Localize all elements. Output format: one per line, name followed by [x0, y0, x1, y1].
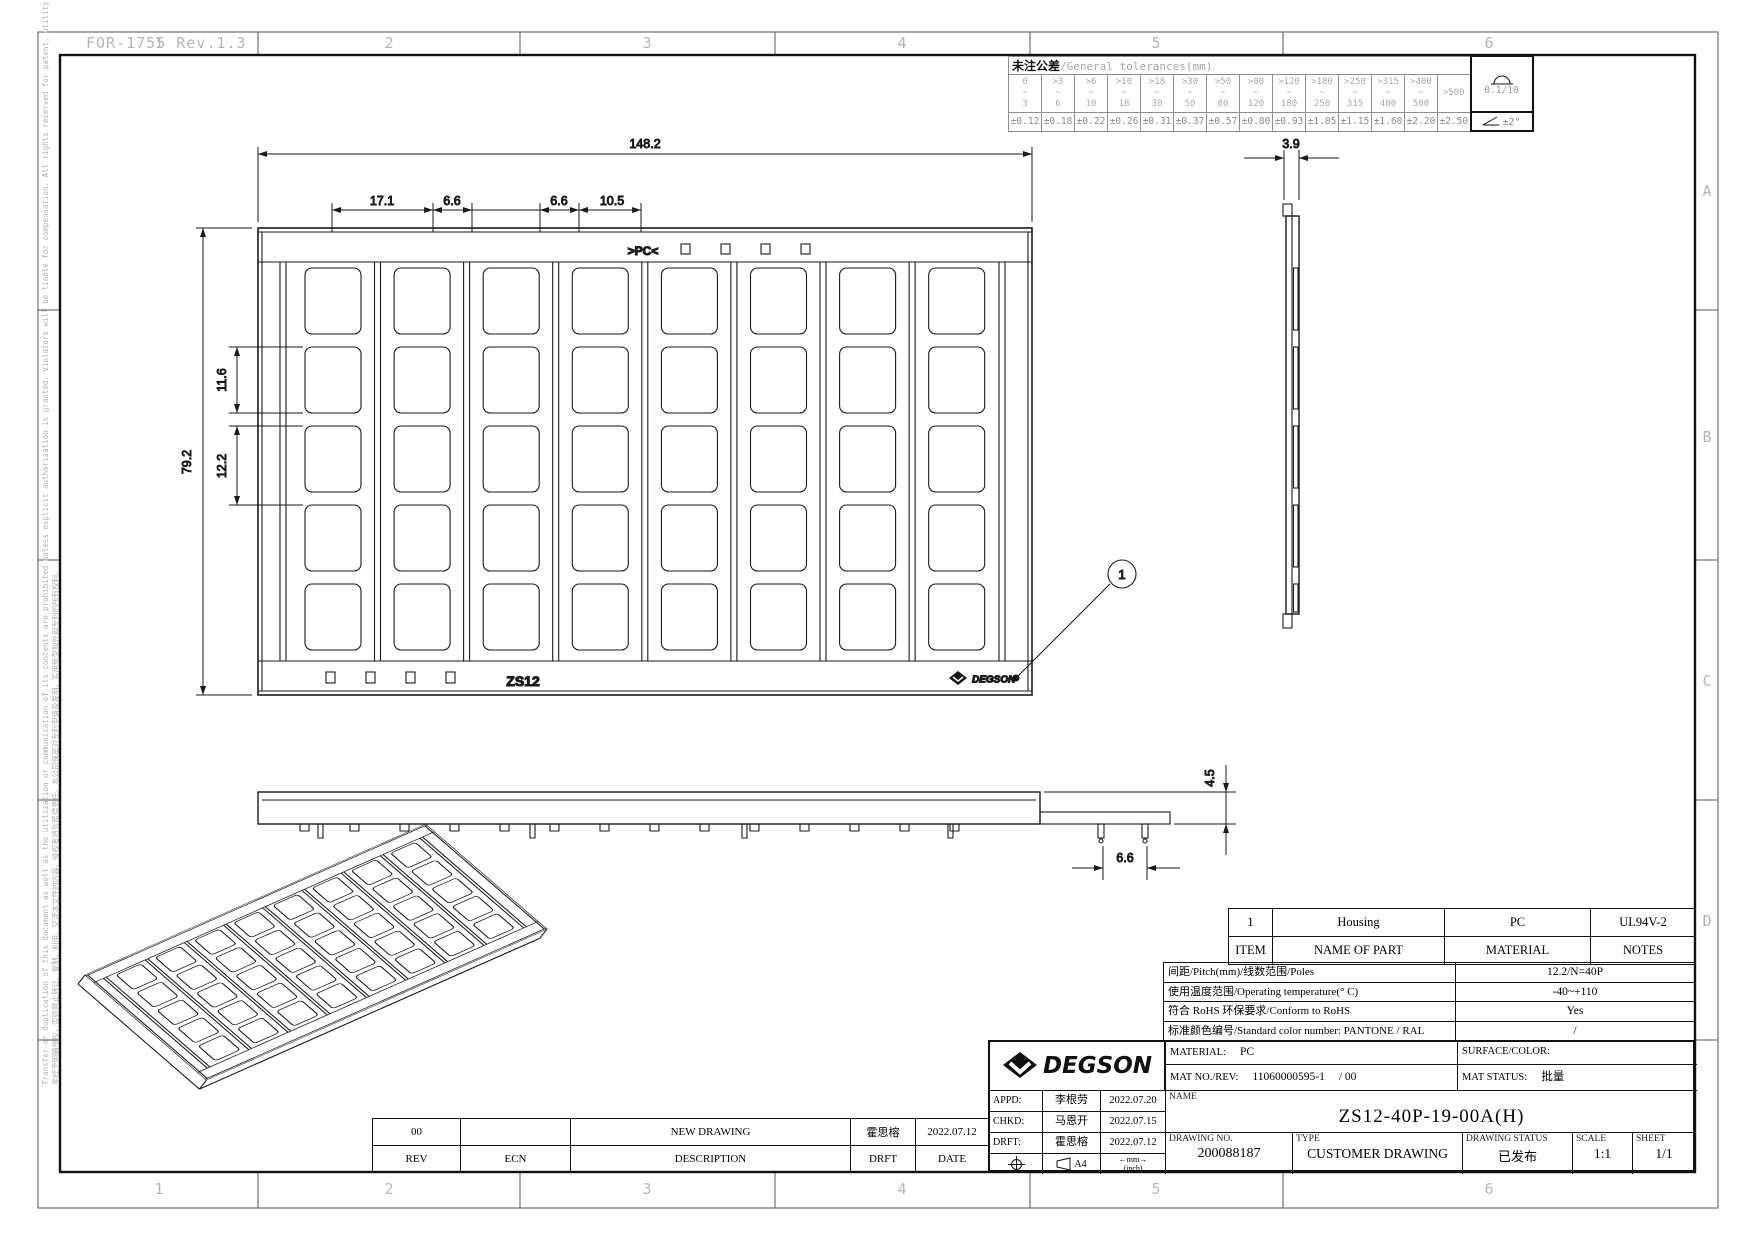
dim-seg-c: 6.6	[550, 194, 567, 208]
zone-col-6-bottom: 6	[1479, 1180, 1499, 1198]
appd-label: APPD:	[990, 1090, 1042, 1111]
dim-seg-a: 17.1	[370, 194, 394, 208]
revision-table: 00 NEW DRAWING 霍思榕 2022.07.12 REV ECN DE…	[372, 1118, 989, 1173]
zone-col-4-top: 4	[892, 34, 912, 52]
mat-no-cell: MAT NO./REV:11060000595-1/ 00	[1165, 1064, 1457, 1090]
flatness-icon	[1491, 74, 1513, 85]
dim-total-height: 79.2	[180, 450, 194, 474]
drawing-status-cell: DRAWING STATUS 已发布	[1462, 1132, 1572, 1174]
dim-total-width: 148.2	[629, 137, 660, 151]
flatness-symbol-cell: 0.1/10	[1471, 56, 1533, 112]
pc-marking: >PC<	[628, 244, 659, 258]
item-table: 1 Housing PC UL94V-2 ITEM NAME OF PART M…	[1228, 908, 1696, 965]
front-view: >PC< ZS12 DEGSON	[258, 228, 1032, 695]
chkd-label: CHKD:	[990, 1111, 1042, 1132]
side-view	[1283, 204, 1299, 628]
dimensions: 148.2 17.1 6.6 6.6 10.5 79.2 11.6 12.2 3…	[180, 137, 1339, 880]
balloon-1: 1	[1016, 560, 1136, 678]
legal-notice-cn: 非经予明确授权，否则禁止转让、复制、利用、交流本文件的内容，侵权者将负赔偿责任。…	[51, 120, 61, 1085]
spec-row-rohs: 符合 RoHS 环保要求/Conform to RoHS Yes	[1164, 1002, 1694, 1022]
zone-col-5-top: 5	[1146, 34, 1166, 52]
bottom-profile-view	[258, 792, 1170, 843]
sheet-cell: SHEET 1/1	[1632, 1132, 1695, 1174]
zone-col-3-bottom: 3	[637, 1180, 657, 1198]
drft-name: 霍思榕	[1042, 1132, 1100, 1153]
angle-tolerance-cell: ±2°	[1471, 112, 1533, 131]
dim-row-pitch: 12.2	[215, 454, 229, 478]
zone-col-3-top: 3	[637, 34, 657, 52]
chkd-date: 2022.07.15	[1100, 1111, 1165, 1132]
chkd-name: 马恩开	[1042, 1111, 1100, 1132]
mat-status-cell: MAT STATUS:批量	[1457, 1064, 1697, 1090]
zone-col-4-bottom: 4	[892, 1180, 912, 1198]
svg-text:1: 1	[1118, 567, 1125, 582]
zone-col-6-top: 6	[1479, 34, 1499, 52]
drft-date: 2022.07.12	[1100, 1132, 1165, 1153]
material-cell: MATERIAL:PC	[1165, 1042, 1457, 1064]
zone-row-c: C	[1697, 672, 1717, 690]
spec-row-color: 标准颜色编号/Standard color number: PANTONE / …	[1164, 1022, 1694, 1042]
revision-row: 00 NEW DRAWING 霍思榕 2022.07.12	[373, 1119, 989, 1146]
surface-color-cell: SURFACE/COLOR:	[1457, 1042, 1697, 1064]
part-name: ZS12-40P-19-00A(H)	[1166, 1106, 1697, 1128]
degson-logo-text: DEGSON	[1043, 1053, 1152, 1079]
drft-label: DRFT:	[990, 1132, 1042, 1153]
units-mm: ←mm→	[1119, 1155, 1147, 1164]
zone-col-1-top: 1	[149, 34, 169, 52]
tolerance-table: 未注公差/General tolerances(mm) 0.1/10 0 ~ 3…	[1008, 55, 1534, 132]
tolerance-title: 未注公差/General tolerances(mm)	[1009, 56, 1471, 74]
first-angle-projection-icon	[1008, 1156, 1025, 1173]
dim-seg-d: 10.5	[600, 194, 624, 208]
revision-header-row: REV ECN DESCRIPTION DRFT DATE	[373, 1146, 989, 1173]
cone-projection-icon	[1056, 1157, 1072, 1171]
legal-notice: Transfer or duplication of this document…	[41, 120, 61, 1085]
item-row: 1 Housing PC UL94V-2	[1229, 909, 1696, 937]
spec-table: 间距/Pitch(mm)/线数范围/Poles 12.2/N=40P 使用温度范…	[1163, 962, 1695, 1042]
drawing-no-cell: DRAWING NO. 200088187	[1165, 1132, 1292, 1174]
dim-side-width: 3.9	[1282, 137, 1299, 151]
zone-col-2-bottom: 2	[379, 1180, 399, 1198]
units-inch: (inch)	[1119, 1164, 1147, 1173]
degson-logo-icon	[1002, 1051, 1038, 1081]
dim-seg-b: 6.6	[443, 194, 460, 208]
isometric-view	[78, 824, 547, 1089]
logo-cell: DEGSON	[990, 1042, 1165, 1090]
projection-symbol-cell	[990, 1153, 1042, 1174]
part-name-cell: NAME ZS12-40P-19-00A(H)	[1165, 1090, 1697, 1132]
zone-col-5-bottom: 5	[1146, 1180, 1166, 1198]
dim-base-slot: 6.6	[1116, 851, 1133, 865]
units-cell: ←mm→ (inch)	[1100, 1153, 1165, 1174]
appd-date: 2022.07.20	[1100, 1090, 1165, 1111]
item-header-row: ITEM NAME OF PART MATERIAL NOTES	[1229, 937, 1696, 965]
drawing-no: 200088187	[1166, 1146, 1292, 1162]
scale-cell: SCALE 1:1	[1572, 1132, 1632, 1174]
zone-row-b: B	[1697, 428, 1717, 446]
part-marking: ZS12	[506, 673, 540, 689]
drawing-type: CUSTOMER DRAWING	[1293, 1146, 1462, 1162]
zone-col-1-bottom: 1	[149, 1180, 169, 1198]
zone-row-d: D	[1697, 912, 1717, 930]
drawing-status: 已发布	[1463, 1146, 1572, 1165]
dim-base-height: 4.5	[1203, 769, 1217, 786]
type-cell: TYPE CUSTOMER DRAWING	[1292, 1132, 1462, 1174]
title-block: DEGSON APPD: 李根劳 2022.07.20 CHKD: 马恩开 20…	[988, 1040, 1695, 1172]
zone-col-2-top: 2	[379, 34, 399, 52]
degson-mark-small: DEGSON	[949, 671, 1016, 686]
spec-row-pitch: 间距/Pitch(mm)/线数范围/Poles 12.2/N=40P	[1164, 963, 1694, 983]
drawing-sheet: >PC< ZS12 DEGSON 1	[0, 0, 1754, 1240]
appd-name: 李根劳	[1042, 1090, 1100, 1111]
zone-row-a: A	[1697, 182, 1717, 200]
angle-icon	[1482, 116, 1500, 126]
spec-row-temperature: 使用温度范围/Operating temperature(° C) -40~+1…	[1164, 983, 1694, 1003]
sheet-value: 1/1	[1633, 1146, 1695, 1162]
legal-notice-en: Transfer or duplication of this document…	[41, 120, 51, 1085]
scale-value: 1:1	[1573, 1146, 1632, 1162]
paper-size-cell: A4	[1042, 1153, 1100, 1174]
dim-window-height: 11.6	[215, 368, 229, 391]
svg-text:DEGSON: DEGSON	[972, 675, 1016, 686]
